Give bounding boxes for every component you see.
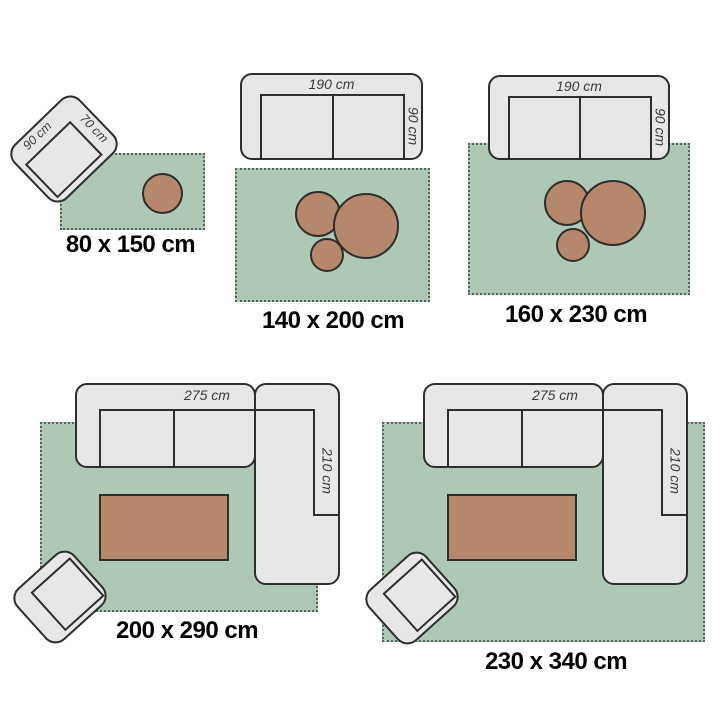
sofa-armrest-line xyxy=(99,409,101,468)
rug-size-label: 140 x 200 cm xyxy=(248,309,418,333)
sofa-depth-label: 90 cm xyxy=(652,96,668,158)
rug-size-comparison-diagram: 90 cm 70 cm 80 x 150 cm 190 cm 90 cm 140… xyxy=(0,0,720,720)
sofa-width-label: 190 cm xyxy=(490,79,668,94)
rug-size-label: 200 x 290 cm xyxy=(97,619,277,643)
sofa-backrest-line xyxy=(99,409,315,411)
sofa-width-label: 190 cm xyxy=(242,77,421,92)
rug-140x200 xyxy=(235,168,430,302)
sofa-depth-label: 210 cm xyxy=(315,428,339,514)
sofa-chaise-notch-line xyxy=(661,514,687,516)
two-seater-sofa: 190 cm 90 cm xyxy=(488,75,670,160)
coffee-table xyxy=(447,494,577,561)
pouf xyxy=(142,173,183,214)
two-seater-sofa: 190 cm 90 cm xyxy=(240,73,423,160)
rug-size-label: 80 x 150 cm xyxy=(48,233,213,257)
sofa-depth-label: 90 cm xyxy=(405,94,421,158)
sofa-chaise-notch-line xyxy=(313,514,339,516)
sofa-cushion-divider xyxy=(521,409,523,468)
sofa-cushion-divider xyxy=(579,98,581,158)
sofa-armrest-line xyxy=(447,409,449,468)
coffee-table xyxy=(99,494,229,561)
sofa-cushion-divider xyxy=(173,409,175,468)
sofa-depth-label: 210 cm xyxy=(663,428,687,514)
rug-size-label: 230 x 340 cm xyxy=(456,650,656,674)
rug-size-label: 160 x 230 cm xyxy=(491,303,661,327)
sofa-seat xyxy=(260,94,405,158)
sofa-backrest-line xyxy=(447,409,663,411)
coffee-table-large xyxy=(333,193,399,259)
sofa-width-label: 275 cm xyxy=(99,388,315,403)
sofa-cushion-divider xyxy=(332,96,334,158)
coffee-table-small xyxy=(556,228,590,262)
sofa-seat xyxy=(508,96,652,158)
sofa-width-label: 275 cm xyxy=(447,388,663,403)
coffee-table-large xyxy=(580,180,646,246)
